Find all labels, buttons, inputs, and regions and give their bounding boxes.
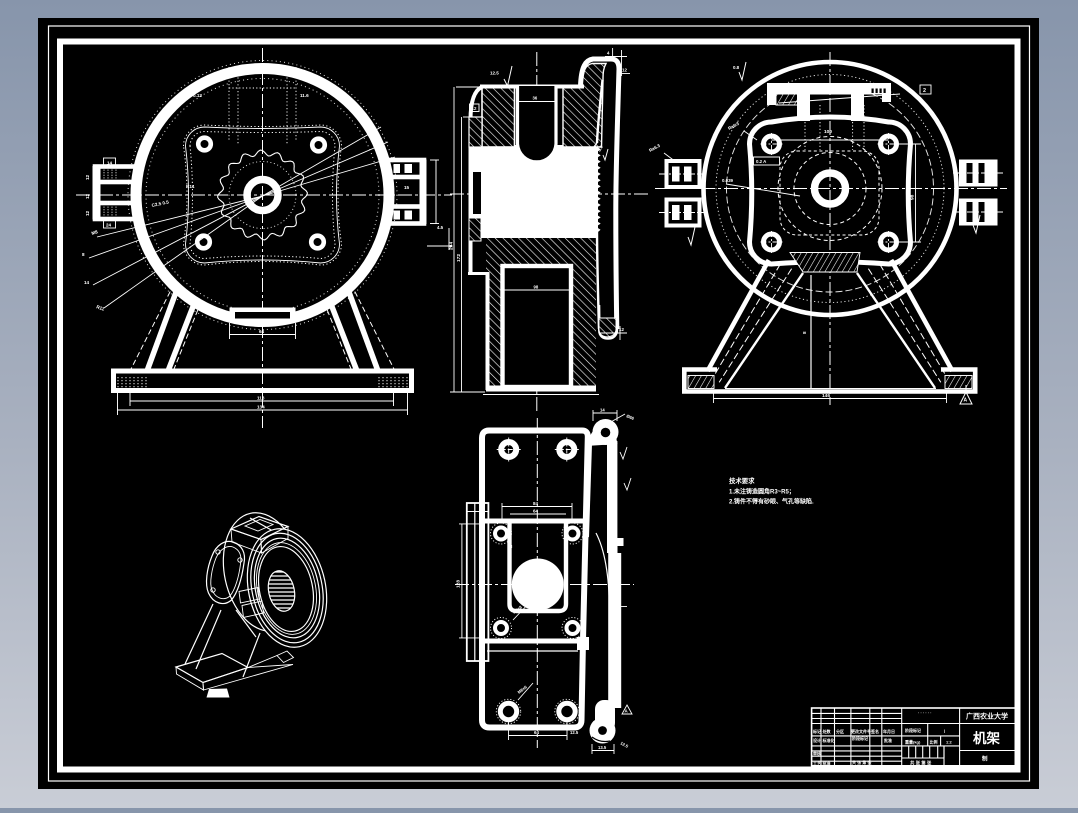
svg-text:共 张 第 张: 共 张 第 张 [852, 759, 872, 765]
svg-text:12: 12 [85, 174, 90, 180]
svg-text:14: 14 [84, 280, 90, 285]
svg-text:100: 100 [824, 129, 832, 135]
svg-text:128: 128 [456, 580, 462, 588]
svg-text:年月日: 年月日 [883, 728, 895, 734]
svg-text:批准: 批准 [823, 760, 831, 766]
svg-text:阶段标记: 阶段标记 [905, 727, 921, 733]
svg-text:2.铸件不得有砂眼、气孔等缺陷.: 2.铸件不得有砂眼、气孔等缺陷. [729, 498, 814, 506]
svg-text:12: 12 [85, 210, 90, 216]
svg-text:64: 64 [534, 730, 540, 735]
svg-text:阶段标记: 阶段标记 [852, 735, 868, 741]
svg-text:技术要求: 技术要求 [729, 476, 755, 485]
svg-text:1:2: 1:2 [946, 740, 953, 745]
svg-text:98: 98 [910, 194, 916, 200]
svg-text:R14: R14 [186, 184, 195, 189]
svg-text:12: 12 [619, 327, 624, 332]
svg-text:重量(kg): 重量(kg) [905, 739, 921, 745]
svg-text:14: 14 [107, 161, 113, 166]
svg-text:机架: 机架 [973, 730, 1001, 746]
svg-text:0.2 A: 0.2 A [756, 159, 767, 164]
svg-text:15: 15 [404, 185, 410, 190]
svg-text:制: 制 [982, 755, 988, 763]
svg-text:广西农业大学: 广西农业大学 [966, 712, 1008, 721]
svg-text:处数: 处数 [822, 728, 831, 734]
svg-text:1.未注铸造圆角R3~R5；: 1.未注铸造圆角R3~R5； [729, 488, 795, 496]
svg-text:4.5: 4.5 [437, 225, 444, 230]
svg-text:A: A [964, 398, 968, 404]
svg-text:12.5: 12.5 [490, 71, 499, 76]
svg-text:· · · · · ·: · · · · · · [918, 710, 932, 715]
svg-text:172: 172 [456, 254, 462, 262]
svg-text:0.8: 0.8 [733, 65, 740, 70]
svg-text:204: 204 [449, 242, 455, 250]
svg-text:标准化: 标准化 [822, 737, 835, 743]
svg-text:12.5: 12.5 [570, 730, 579, 735]
svg-text:0.039: 0.039 [722, 178, 734, 183]
svg-text:审核: 审核 [813, 750, 821, 756]
svg-text:84: 84 [533, 501, 539, 506]
svg-text:12: 12 [622, 68, 627, 73]
svg-text:12: 12 [85, 193, 90, 199]
svg-text:8: 8 [802, 331, 807, 334]
svg-text:标记: 标记 [812, 728, 821, 734]
svg-text:14: 14 [600, 408, 605, 413]
svg-text:24: 24 [106, 223, 112, 228]
svg-text:36: 36 [533, 96, 538, 101]
svg-text:2: 2 [923, 88, 926, 94]
svg-text:签名: 签名 [870, 728, 879, 734]
svg-text:共 张 第 张: 共 张 第 张 [910, 760, 932, 767]
svg-text:12: 12 [472, 106, 477, 111]
svg-text:更改文件号: 更改文件号 [851, 728, 871, 734]
svg-text:工艺: 工艺 [813, 760, 821, 766]
svg-text:13.5: 13.5 [598, 745, 607, 750]
svg-text:批准: 批准 [884, 737, 892, 743]
svg-text:11.6: 11.6 [300, 93, 309, 98]
svg-text:146: 146 [822, 393, 830, 399]
svg-text:分区: 分区 [836, 728, 844, 734]
svg-text:98: 98 [534, 285, 539, 290]
svg-text:64: 64 [533, 509, 539, 514]
svg-text:|: | [944, 728, 945, 733]
svg-text:0.13: 0.13 [193, 93, 202, 98]
svg-text:8: 8 [82, 252, 85, 257]
svg-text:134: 134 [257, 405, 265, 410]
svg-text:64: 64 [259, 329, 265, 334]
svg-text:设计: 设计 [813, 737, 821, 743]
svg-text:118: 118 [257, 396, 265, 401]
svg-text:比例: 比例 [930, 739, 938, 745]
